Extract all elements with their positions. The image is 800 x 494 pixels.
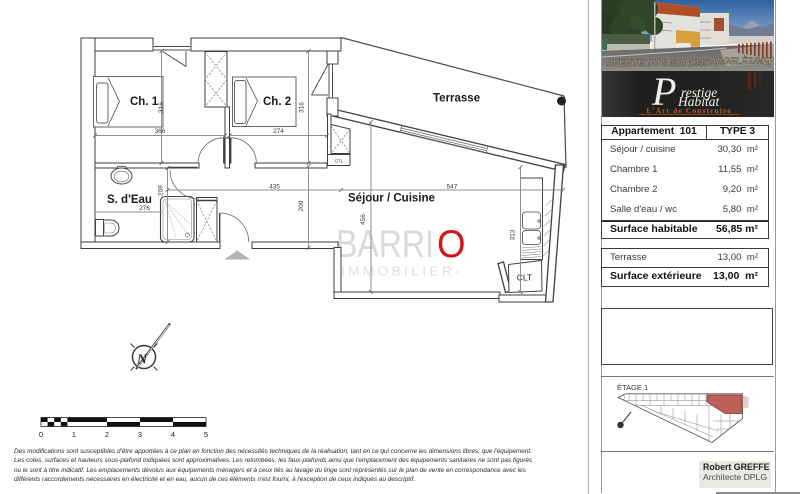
svg-text:Ch. 1: Ch. 1 — [130, 96, 159, 108]
svg-text:O: O — [437, 223, 466, 266]
svg-text:GTL: GTL — [335, 159, 344, 164]
svg-text:1: 1 — [72, 430, 76, 439]
svg-text:CLT: CLT — [517, 273, 532, 283]
svg-text:316: 316 — [299, 102, 306, 113]
svg-text:456: 456 — [360, 214, 367, 225]
svg-text:L'Art de Construire: L'Art de Construire — [646, 106, 731, 115]
svg-text:4: 4 — [171, 430, 175, 439]
svg-text:2: 2 — [105, 430, 109, 439]
svg-text:3: 3 — [138, 430, 142, 439]
svg-text:Séjour / Cuisine: Séjour / Cuisine — [348, 193, 435, 205]
svg-text:274: 274 — [273, 128, 284, 135]
svg-text:209: 209 — [298, 200, 305, 211]
svg-text:276: 276 — [139, 205, 150, 212]
svg-text:Terrasse: Terrasse — [433, 93, 480, 105]
svg-text:313: 313 — [510, 229, 517, 240]
svg-text:-IMMOBILIER-: -IMMOBILIER- — [333, 265, 463, 279]
svg-text:BARRI: BARRI — [336, 223, 434, 266]
svg-text:0: 0 — [39, 430, 43, 439]
svg-text:Ch. 2: Ch. 2 — [263, 96, 291, 108]
svg-text:547: 547 — [447, 184, 458, 191]
svg-text:5: 5 — [204, 430, 208, 439]
svg-text:N: N — [136, 353, 148, 368]
svg-text:366: 366 — [155, 128, 166, 135]
svg-text:208: 208 — [158, 185, 165, 196]
svg-text:316: 316 — [158, 102, 165, 113]
svg-text:435: 435 — [269, 184, 280, 191]
